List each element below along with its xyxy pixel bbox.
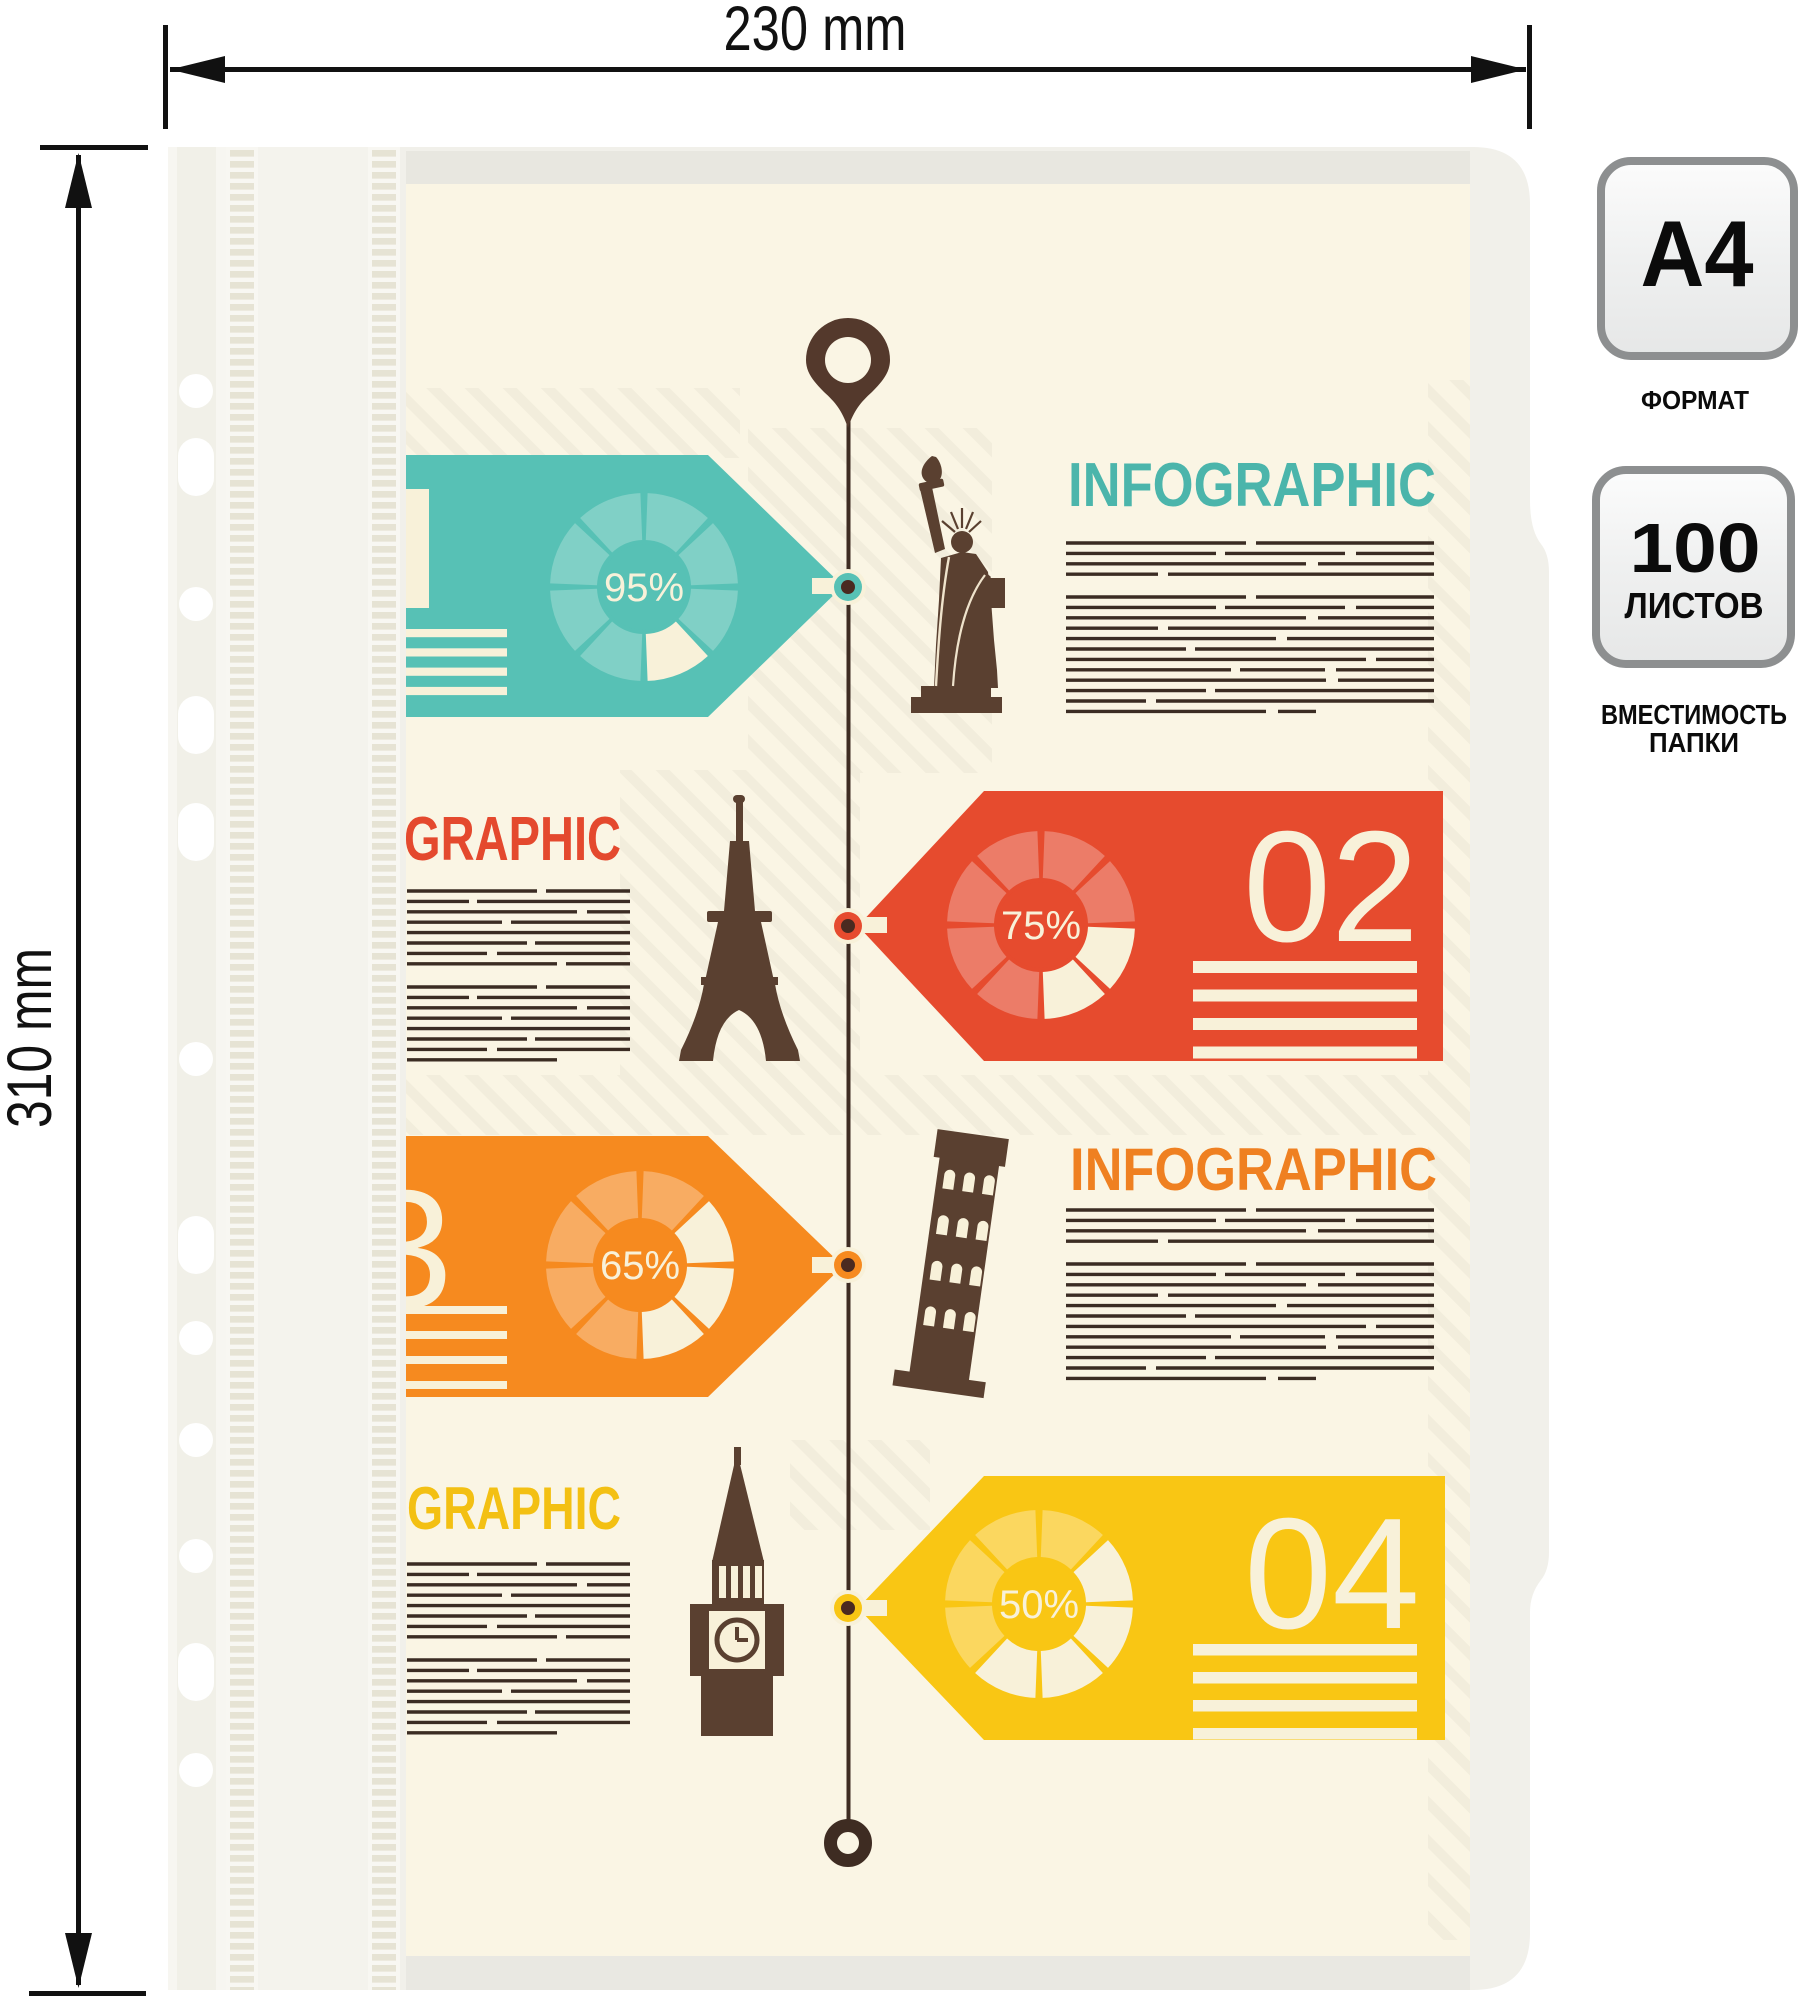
svg-text:75%: 75% (1001, 904, 1081, 948)
svg-text:ЛИСТОВ: ЛИСТОВ (1625, 585, 1764, 626)
svg-text:INFOGRAPHIC: INFOGRAPHIC (1070, 1136, 1437, 1203)
svg-text:50%: 50% (999, 1583, 1079, 1627)
svg-text:ПАПКИ: ПАПКИ (1649, 727, 1739, 758)
svg-text:230 mm: 230 mm (724, 0, 907, 64)
svg-text:ФОРМАТ: ФОРМАТ (1641, 385, 1749, 415)
svg-text:ВМЕСТИМОСТЬ: ВМЕСТИМОСТЬ (1601, 699, 1787, 730)
svg-text:04: 04 (1244, 1486, 1420, 1662)
svg-text:95%: 95% (604, 566, 684, 610)
svg-text:A4: A4 (1641, 201, 1754, 306)
svg-text:100: 100 (1630, 509, 1761, 587)
svg-text:02: 02 (1243, 799, 1419, 975)
svg-text:GRAPHIC: GRAPHIC (404, 805, 621, 874)
svg-text:GRAPHIC: GRAPHIC (407, 1475, 621, 1542)
svg-text:65%: 65% (600, 1244, 680, 1288)
svg-text:INFOGRAPHIC: INFOGRAPHIC (1068, 451, 1436, 520)
svg-text:310 mm: 310 mm (0, 948, 65, 1128)
